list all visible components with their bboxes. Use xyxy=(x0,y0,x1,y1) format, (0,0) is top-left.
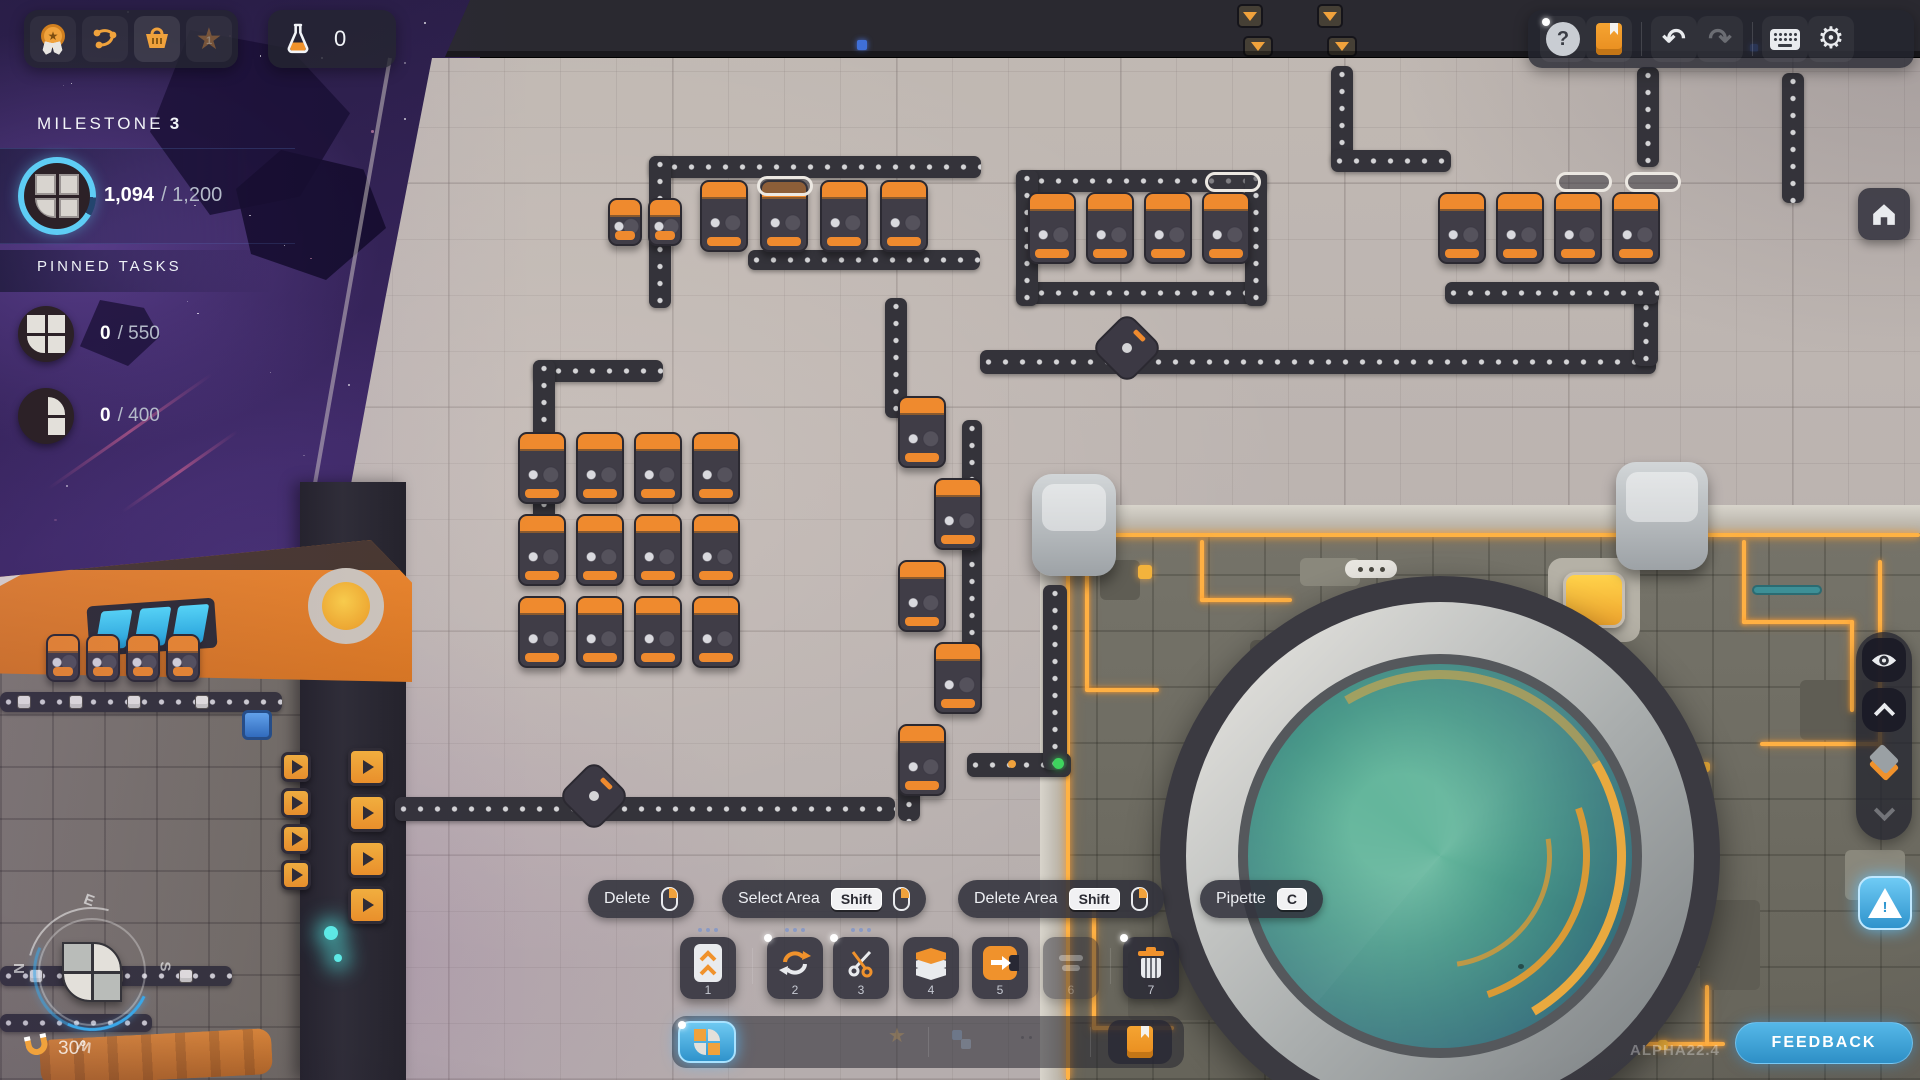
layer-down-button[interactable] xyxy=(1862,788,1906,832)
hint-delete: Delete xyxy=(588,880,694,918)
hint-label: Select Area xyxy=(738,890,820,908)
top-left-toolbar: ★ ★ 1 xyxy=(24,10,238,68)
hint-delete-area: Delete Area Shift xyxy=(958,880,1164,918)
top-right-toolbar: ? ↶ ↷ ⚙ xyxy=(1528,10,1914,68)
feedback-button[interactable]: FEEDBACK xyxy=(1735,1022,1913,1064)
layer-up-button[interactable] xyxy=(1862,688,1906,732)
notification-dot xyxy=(1542,18,1550,26)
key-badge: Shift xyxy=(1069,888,1120,910)
settings-button[interactable]: ⚙ xyxy=(1808,16,1854,62)
milestone-label: MILESTONE xyxy=(37,114,164,133)
slot-locked[interactable]: 6 xyxy=(1043,937,1099,999)
task-progress: 0/ 550 xyxy=(100,323,160,345)
compass-shape-icon xyxy=(64,944,120,1000)
research-points: 0 xyxy=(334,26,346,52)
milestone-number: 3 xyxy=(170,114,183,133)
task-shape-icon xyxy=(18,306,74,362)
submenu-dots xyxy=(698,928,718,932)
slot-extract[interactable]: 5 xyxy=(972,937,1028,999)
scissors-icon xyxy=(846,948,876,978)
pinned-task[interactable]: 0/ 550 xyxy=(18,305,160,363)
submenu-dots xyxy=(851,928,871,932)
slot-cut[interactable]: 3 xyxy=(833,937,889,999)
notification-dot xyxy=(1120,934,1128,942)
hint-label: Delete Area xyxy=(974,890,1058,908)
help-icon: ? xyxy=(1546,22,1580,56)
divider xyxy=(1090,1027,1091,1057)
tasks-graph-button[interactable] xyxy=(82,16,128,62)
gear-icon: ⚙ xyxy=(1818,24,1845,54)
notification-dot xyxy=(764,934,772,942)
keyboard-icon xyxy=(1770,29,1800,50)
home-button[interactable] xyxy=(1858,188,1910,240)
milestones-button[interactable]: ★ xyxy=(30,16,76,62)
pinned-task[interactable]: 0/ 400 xyxy=(18,387,160,445)
chevron-down-icon xyxy=(1873,799,1894,820)
view-controls xyxy=(1856,632,1912,840)
shortcuts-button[interactable] xyxy=(1762,16,1808,62)
transport-icon xyxy=(694,944,722,982)
eye-icon xyxy=(1870,651,1898,670)
divider xyxy=(1110,948,1111,984)
category-shapes-selected[interactable] xyxy=(678,1021,736,1063)
encyclopedia-button[interactable] xyxy=(1108,1020,1172,1064)
basket-icon xyxy=(142,25,172,53)
hint-label: Pipette xyxy=(1216,890,1266,908)
undo-icon: ↶ xyxy=(1662,25,1685,53)
layer-indicator-button[interactable] xyxy=(1862,738,1906,782)
submenu-dots xyxy=(785,928,805,932)
visibility-button[interactable] xyxy=(1862,638,1906,682)
rotation-angle: 30° xyxy=(58,1038,87,1060)
medal-icon: ★ xyxy=(40,24,66,54)
game-screen: ★ ★ 1 xyxy=(0,0,1920,1080)
book-icon xyxy=(1127,1026,1153,1058)
shape-category-icon xyxy=(694,1029,720,1055)
help-button[interactable]: ? xyxy=(1540,16,1586,62)
slot-transport[interactable]: 1 xyxy=(680,937,736,999)
pinned-tasks-header: PINNED TASKS xyxy=(37,258,182,275)
book-icon xyxy=(1596,23,1622,55)
redo-icon: ↷ xyxy=(1708,25,1731,53)
chevron-up-icon xyxy=(1873,702,1894,723)
level-star-button[interactable]: ★ 1 xyxy=(186,16,232,62)
warning-icon: ! xyxy=(1868,888,1902,918)
flask-icon xyxy=(284,22,312,56)
milestone-progress-button[interactable] xyxy=(18,157,96,235)
slot-rotate[interactable]: 2 xyxy=(767,937,823,999)
alerts-button[interactable]: ! xyxy=(1858,876,1912,930)
version-label: ALPHA22.4 xyxy=(1630,1042,1720,1059)
undo-button[interactable]: ↶ xyxy=(1651,16,1697,62)
hint-select-area: Select Area Shift xyxy=(722,880,926,918)
star-icon: ★ xyxy=(888,1025,906,1047)
mouse-right-icon xyxy=(1131,887,1148,911)
compass-n: N xyxy=(11,963,28,974)
divider xyxy=(1641,22,1642,56)
slot-trash[interactable]: 7 xyxy=(1123,937,1179,999)
node-graph-icon xyxy=(90,26,120,52)
divider xyxy=(928,1027,929,1057)
divider xyxy=(752,948,753,984)
notification-dot xyxy=(830,934,838,942)
trash-icon xyxy=(1138,947,1164,979)
compass-s: S xyxy=(156,961,173,971)
milestone-total: / 1,200 xyxy=(161,184,222,206)
divider xyxy=(1752,22,1753,56)
mouse-right-icon xyxy=(893,887,910,911)
hint-label: Delete xyxy=(604,890,650,908)
redo-button[interactable]: ↷ xyxy=(1697,16,1743,62)
mouse-right-icon xyxy=(661,887,678,911)
journal-button[interactable] xyxy=(1586,16,1632,62)
slot-layers[interactable]: 4 xyxy=(903,937,959,999)
key-badge: Shift xyxy=(831,888,882,910)
level-star-icon: ★ 1 xyxy=(196,22,223,57)
milestone-progress: 1,094/ 1,200 xyxy=(104,184,222,207)
shop-button[interactable] xyxy=(134,16,180,62)
locked-icon xyxy=(1059,953,1083,973)
task-shape-icon xyxy=(18,388,74,444)
extract-icon xyxy=(983,946,1017,980)
layers-icon xyxy=(1869,747,1899,773)
rotate-icon xyxy=(779,948,811,978)
category-special[interactable]: ★ xyxy=(888,1026,906,1047)
snap-magnet-icon[interactable] xyxy=(24,1036,49,1057)
milestone-title: MILESTONE3 xyxy=(37,114,182,134)
milestone-shape-icon xyxy=(24,163,90,229)
notification-dot xyxy=(678,1021,686,1029)
layer-stack-icon xyxy=(915,948,947,978)
research-panel[interactable]: 0 xyxy=(268,10,396,68)
hint-pipette: Pipette C xyxy=(1200,880,1323,918)
compass-widget[interactable]: N E S W xyxy=(38,918,146,1026)
key-badge: C xyxy=(1277,888,1307,910)
home-icon xyxy=(1871,202,1897,226)
milestone-current: 1,094 xyxy=(104,184,154,206)
task-progress: 0/ 400 xyxy=(100,405,160,427)
